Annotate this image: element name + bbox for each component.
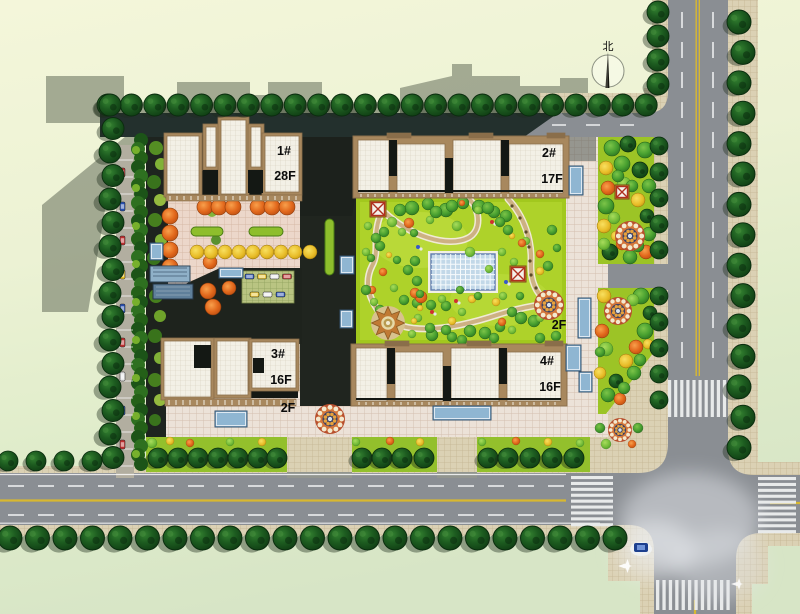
svg-text:17F: 17F [541,172,563,186]
svg-text:16F: 16F [539,380,561,394]
svg-text:2F: 2F [552,318,567,332]
svg-text:2#: 2# [542,146,556,160]
svg-text:16F: 16F [270,373,292,387]
svg-text:3#: 3# [271,347,285,361]
svg-text:28F: 28F [274,169,296,183]
svg-text:1#: 1# [277,144,291,158]
svg-text:北: 北 [603,40,614,53]
svg-text:4#: 4# [540,354,554,368]
svg-text:2F: 2F [281,401,296,415]
